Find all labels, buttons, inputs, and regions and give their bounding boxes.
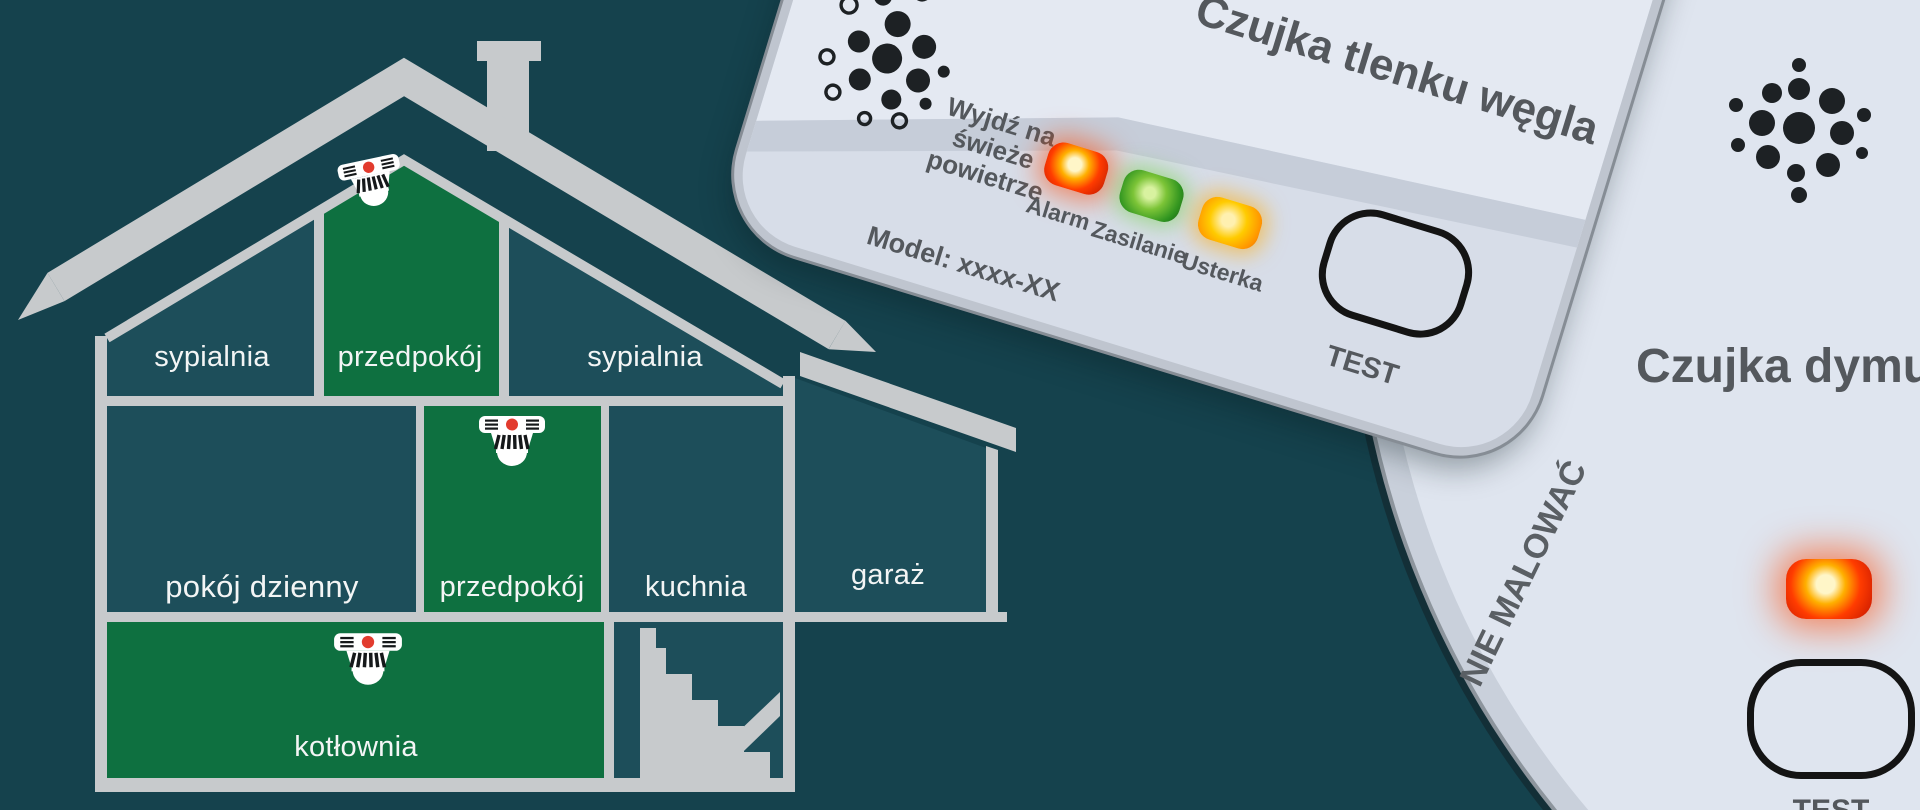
floor-line	[95, 396, 795, 406]
base-wall	[95, 778, 795, 792]
test-button	[1747, 659, 1915, 779]
test-button-label: TEST	[1300, 333, 1424, 400]
infographic-canvas: sypialnia przedpokój sypialnia pokój dzi…	[0, 0, 1920, 810]
wall	[416, 406, 424, 612]
room-label-sypialnia-right: sypialnia	[587, 341, 703, 373]
wall	[604, 622, 614, 778]
room-label-przedpokoj-attic: przedpokój	[338, 341, 483, 373]
fault-led-label: Usterka	[1170, 245, 1274, 300]
test-button-label: TEST	[1761, 794, 1901, 810]
wall	[601, 406, 609, 612]
floor-line	[95, 612, 1007, 622]
power-led-icon	[1115, 166, 1187, 226]
fault-led-icon	[1194, 193, 1266, 253]
smoke-detector-title: Czujka dymu	[1636, 339, 1920, 394]
speaker-holes-icon	[1724, 53, 1874, 203]
garage-wall	[986, 446, 998, 612]
left-wall	[95, 336, 107, 778]
right-wall	[783, 376, 795, 778]
room-label-garaz: garaż	[851, 559, 925, 591]
wall	[499, 212, 509, 406]
do-not-paint-text: NIE MALOWAĆ	[1449, 448, 1598, 699]
room-label-kotlownia: kotłownia	[294, 731, 418, 763]
room-label-sypialnia-left: sypialnia	[154, 341, 270, 373]
alarm-led-icon	[1786, 559, 1872, 619]
room-label-przedpokoj-middle: przedpokój	[440, 571, 585, 603]
wall	[314, 207, 324, 406]
room-label-kuchnia: kuchnia	[645, 571, 748, 603]
room-label-pokoj-dzienny: pokój dzienny	[165, 569, 359, 604]
